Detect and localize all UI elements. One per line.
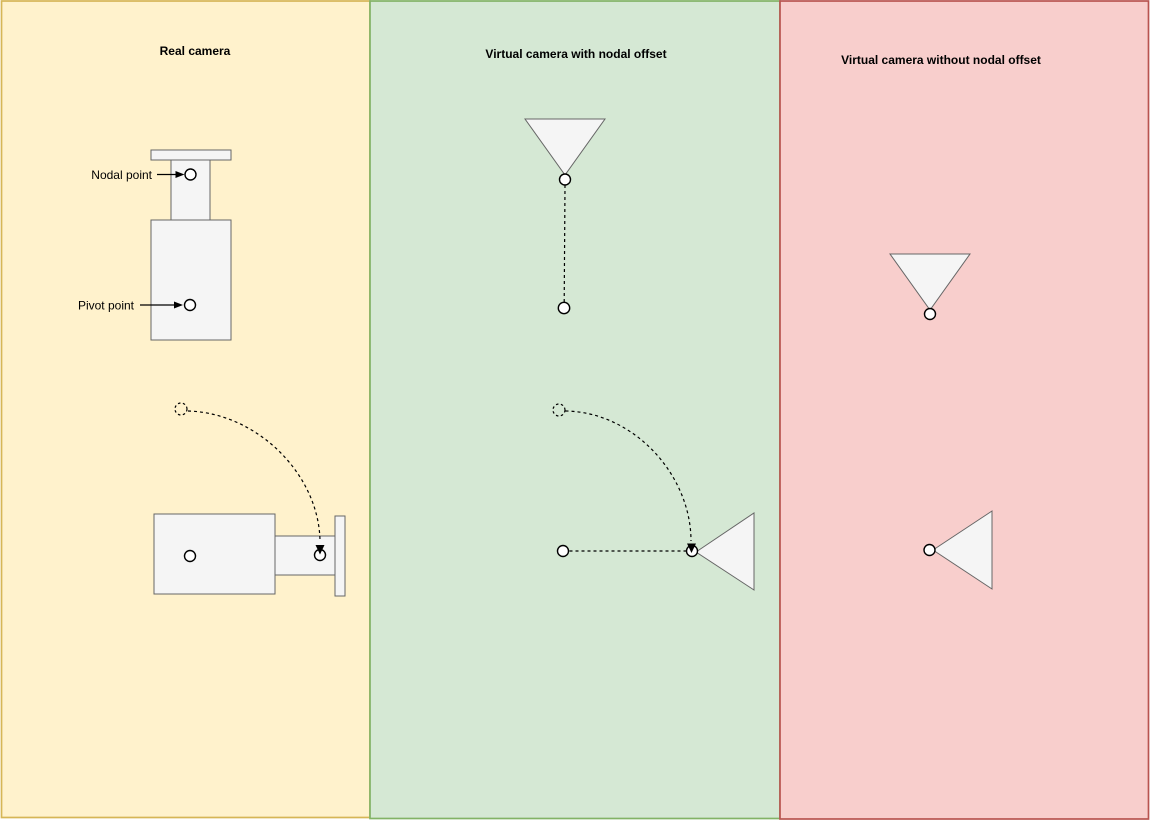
pivot-point-label: Pivot point (78, 299, 135, 313)
nodal-point-marker (185, 169, 196, 180)
panel-title-virtual-with-offset: Virtual camera with nodal offset (485, 47, 666, 61)
nodal-point-marker (560, 174, 571, 185)
pivot-point-marker (185, 300, 196, 311)
pivot-point-marker-rotated (558, 546, 569, 557)
ghost-nodal-point-marker (553, 404, 565, 416)
lens-cap-rotated (335, 516, 345, 596)
ghost-nodal-point-marker (175, 403, 187, 415)
pivot-point-marker (558, 302, 569, 313)
panel-title-virtual-without-offset: Virtual camera without nodal offset (841, 53, 1041, 67)
camera-body-rotated (154, 514, 275, 594)
panel-title-real-camera: Real camera (160, 44, 231, 58)
diagram-canvas: Real camera Virtual camera with nodal of… (0, 0, 1151, 821)
camera-origin-marker (925, 309, 936, 320)
nodal-point-label: Nodal point (91, 168, 152, 182)
panel-virtual-camera-without-nodal-offset (780, 1, 1149, 819)
diagram-svg: Real camera Virtual camera with nodal of… (0, 0, 1151, 821)
pivot-point-marker-rotated (185, 551, 196, 562)
camera-origin-marker (924, 545, 935, 556)
lens-cap (151, 150, 231, 160)
camera-body (151, 220, 231, 340)
